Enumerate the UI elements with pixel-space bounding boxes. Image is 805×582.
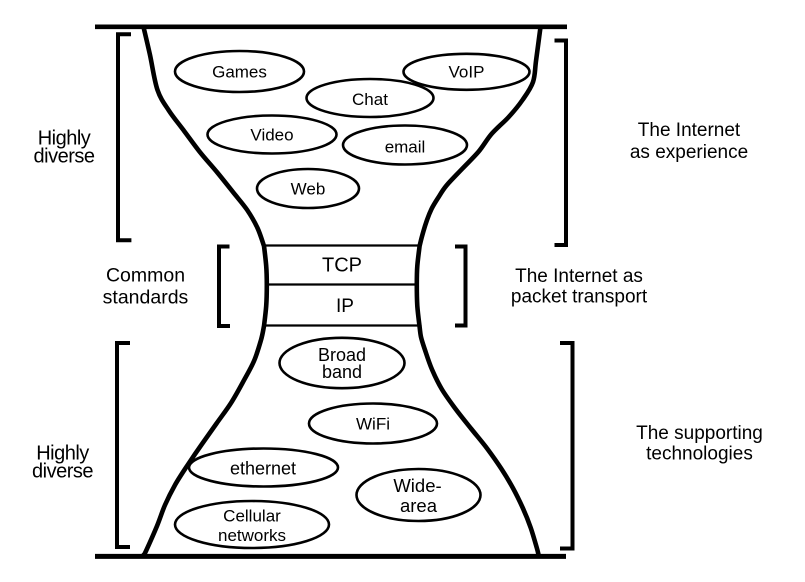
svg-text:technologies: technologies: [646, 444, 753, 465]
svg-text:Web: Web: [291, 180, 326, 199]
svg-text:area: area: [400, 495, 438, 516]
svg-text:band: band: [322, 362, 362, 382]
svg-text:Games: Games: [212, 63, 267, 82]
svg-text:The Internet as: The Internet as: [515, 266, 643, 287]
svg-text:networks: networks: [218, 526, 286, 545]
svg-text:WiFi: WiFi: [356, 415, 390, 434]
svg-text:packet transport: packet transport: [511, 287, 648, 308]
svg-text:TCP: TCP: [322, 255, 362, 277]
svg-text:Common: Common: [106, 265, 185, 287]
svg-text:as experience: as experience: [630, 142, 748, 163]
svg-text:The supporting: The supporting: [636, 423, 763, 444]
svg-text:Chat: Chat: [352, 90, 388, 109]
svg-text:VoIP: VoIP: [449, 63, 485, 82]
svg-text:diverse: diverse: [34, 146, 95, 168]
svg-text:The Internet: The Internet: [638, 120, 741, 141]
svg-text:standards: standards: [103, 286, 189, 308]
svg-text:IP: IP: [336, 296, 354, 317]
svg-text:email: email: [385, 137, 426, 156]
svg-text:diverse: diverse: [32, 461, 93, 483]
svg-text:Video: Video: [250, 126, 293, 145]
svg-text:Wide-: Wide-: [393, 475, 441, 496]
svg-text:Cellular: Cellular: [223, 507, 281, 526]
svg-text:ethernet: ethernet: [230, 458, 296, 478]
